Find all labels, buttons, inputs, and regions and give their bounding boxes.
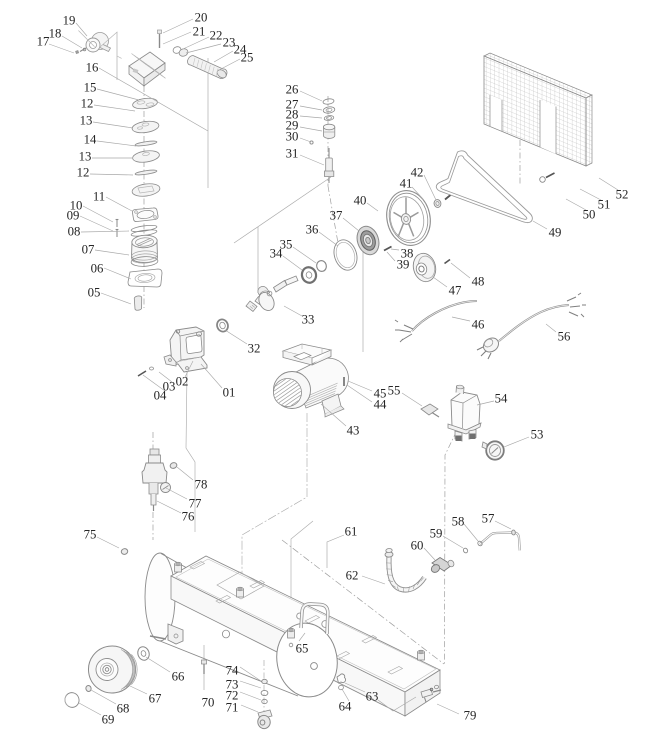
svg-text:15: 15 xyxy=(84,81,97,95)
svg-text:12: 12 xyxy=(81,97,94,111)
svg-text:18: 18 xyxy=(49,27,62,41)
svg-text:21: 21 xyxy=(193,25,206,39)
svg-text:12: 12 xyxy=(77,166,90,180)
svg-text:64: 64 xyxy=(339,700,352,714)
svg-text:32: 32 xyxy=(248,342,261,356)
svg-text:65: 65 xyxy=(296,642,309,656)
svg-text:74: 74 xyxy=(226,664,239,678)
svg-text:22: 22 xyxy=(210,29,223,43)
svg-text:60: 60 xyxy=(411,539,424,553)
svg-text:56: 56 xyxy=(558,330,571,344)
svg-text:07: 07 xyxy=(82,243,95,257)
svg-text:40: 40 xyxy=(354,194,367,208)
svg-text:20: 20 xyxy=(195,11,208,25)
svg-text:02: 02 xyxy=(176,375,189,389)
svg-text:31: 31 xyxy=(286,147,299,161)
svg-text:08: 08 xyxy=(68,225,81,239)
svg-text:49: 49 xyxy=(549,226,562,240)
svg-text:54: 54 xyxy=(495,392,508,406)
svg-text:39: 39 xyxy=(397,258,410,272)
svg-text:26: 26 xyxy=(286,83,299,97)
svg-text:63: 63 xyxy=(366,690,379,704)
svg-text:51: 51 xyxy=(598,198,611,212)
svg-text:05: 05 xyxy=(88,286,101,300)
svg-text:62: 62 xyxy=(346,569,359,583)
svg-text:04: 04 xyxy=(154,389,167,403)
svg-text:79: 79 xyxy=(464,709,477,723)
svg-text:13: 13 xyxy=(79,150,92,164)
svg-text:10: 10 xyxy=(70,199,83,213)
svg-text:11: 11 xyxy=(93,190,105,204)
svg-text:58: 58 xyxy=(452,515,465,529)
svg-text:14: 14 xyxy=(84,133,97,147)
svg-text:66: 66 xyxy=(172,670,185,684)
svg-text:75: 75 xyxy=(84,528,97,542)
svg-text:50: 50 xyxy=(583,208,596,222)
svg-text:13: 13 xyxy=(80,114,93,128)
svg-text:36: 36 xyxy=(306,223,319,237)
svg-text:01: 01 xyxy=(223,386,236,400)
svg-text:71: 71 xyxy=(226,701,239,715)
svg-text:70: 70 xyxy=(202,696,215,710)
svg-text:46: 46 xyxy=(472,318,485,332)
svg-text:69: 69 xyxy=(102,713,115,727)
svg-text:42: 42 xyxy=(411,166,424,180)
svg-text:37: 37 xyxy=(330,209,343,223)
svg-text:77: 77 xyxy=(189,497,202,511)
svg-text:43: 43 xyxy=(347,424,360,438)
svg-text:30: 30 xyxy=(286,130,299,144)
svg-text:57: 57 xyxy=(482,512,495,526)
svg-text:76: 76 xyxy=(182,510,195,524)
svg-text:47: 47 xyxy=(449,284,462,298)
svg-text:45: 45 xyxy=(374,387,387,401)
svg-text:53: 53 xyxy=(531,428,544,442)
svg-text:35: 35 xyxy=(280,238,293,252)
svg-text:25: 25 xyxy=(241,51,254,65)
svg-text:67: 67 xyxy=(149,692,162,706)
svg-text:48: 48 xyxy=(472,275,485,289)
svg-text:55: 55 xyxy=(388,384,401,398)
svg-text:73: 73 xyxy=(226,678,239,692)
svg-text:68: 68 xyxy=(117,702,130,716)
svg-text:78: 78 xyxy=(195,478,208,492)
svg-text:19: 19 xyxy=(63,14,76,28)
svg-text:52: 52 xyxy=(616,188,629,202)
svg-text:33: 33 xyxy=(302,313,315,327)
svg-text:06: 06 xyxy=(91,262,104,276)
svg-text:16: 16 xyxy=(86,61,99,75)
svg-text:61: 61 xyxy=(345,525,358,539)
svg-text:59: 59 xyxy=(430,527,443,541)
